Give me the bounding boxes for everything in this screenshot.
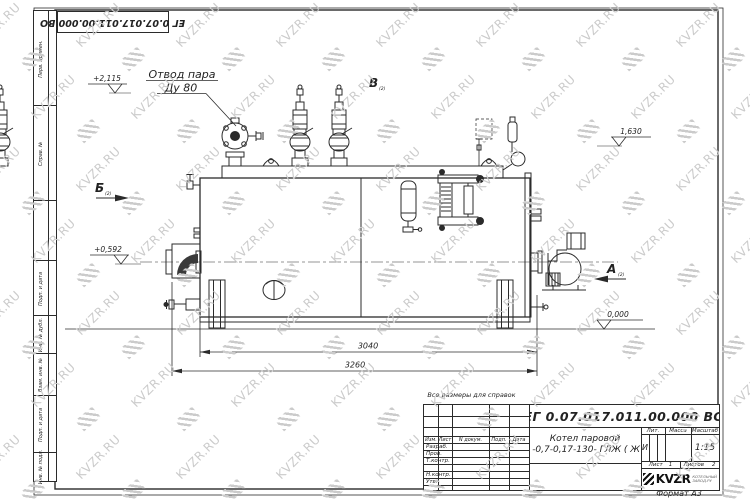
front-fittings [164, 175, 201, 311]
margin-box-divider [48, 453, 49, 481]
sheets-total-label: Листов [683, 462, 704, 468]
company-logo: KVZR КОТЕЛЬНЫЙ ЗАВОД.РУ [643, 470, 717, 488]
product-name-line2: Е -0,7-0,17-130- ГЛЖ ( Ж ) [529, 445, 641, 456]
drawing-sheet: 3040 3260 +2,115 1,630 +0,592 0,000 Б (2… [0, 0, 750, 500]
margin-label: Перв. примен. [38, 40, 44, 78]
steam-outlet-label-1: Отвод пара [148, 68, 215, 81]
elevation-zero-label: 0,000 [607, 310, 629, 319]
elevation-marks [88, 84, 651, 329]
view-a-label: А [606, 262, 616, 276]
view-b-label: Б [95, 181, 104, 195]
view-v-label: В [369, 76, 378, 90]
dim-outer-label: 3260 [345, 361, 365, 370]
kvzr-logo-sub2: ЗАВОД.РУ [692, 479, 717, 484]
reference-note: Все размеры для справок [424, 391, 519, 399]
margin-label: Подп. и дата [38, 271, 44, 305]
col-podp: Подп. [489, 436, 509, 443]
margin-box-divider [48, 316, 49, 354]
sheets-total-number: 2 [712, 462, 716, 468]
boiler-shell [200, 166, 531, 322]
lifting-lugs [263, 159, 497, 166]
margin-box-divider [48, 201, 49, 261]
row-tkontr: Т.контр. [424, 457, 454, 464]
dim-inner-label: 3040 [358, 342, 378, 351]
sheet-number: 1 [669, 462, 673, 468]
margin-box-divider [48, 106, 49, 201]
elevation-right-label: 1,630 [620, 127, 642, 136]
margin-box-sprav: Справ. № [33, 105, 57, 202]
manhole [263, 281, 285, 300]
col-izm: Изм. [424, 436, 438, 443]
col-data: Дата [509, 436, 529, 443]
scale-value: 1:15 [691, 434, 719, 461]
margin-box-divider [48, 261, 49, 316]
condensate-vessel [401, 181, 422, 232]
top-stamp-box: ЕГ 0.07.017.011.00.000 ВО [57, 11, 169, 33]
margin-box-divider [48, 396, 49, 453]
margin-label: Инв. № дубл. [38, 318, 44, 352]
header-massa: Масса [665, 427, 691, 434]
steam-outlet-valve [222, 118, 263, 166]
margin-label: Справ. № [38, 141, 44, 165]
sensor-capsule [508, 122, 517, 142]
safety-valve [0, 85, 13, 166]
row-prov: Пров. [424, 450, 454, 457]
steam-outlet-label-2: Ду 80 [164, 82, 198, 95]
elevation-top-label: +2,115 [93, 74, 121, 83]
header-masshtab: Масштаб [691, 427, 719, 434]
top-stamp-number: ЕГ 0.07.017.011.00.000 ВО [40, 17, 185, 28]
lit-value: И [641, 434, 649, 461]
elevation-left-label: +0,592 [94, 245, 122, 254]
margin-box-inv-dubl: Инв. № дубл. [33, 315, 57, 355]
col-n-dokum: N докум. [452, 436, 489, 443]
row-nkontr: Н.контр. [424, 471, 454, 478]
steam-outlet-callout: Отвод пара Ду 80 [146, 68, 236, 126]
header-lit: Лит. [641, 427, 665, 434]
margin-box-vzam-inv: Взам. инв. № [33, 353, 57, 397]
margin-box-podp-data-1: Подп. и дата [33, 260, 57, 317]
kvzr-logo-icon [643, 473, 654, 485]
title-block: ЕГ 0.07.017.011.00.000 ВО Котел паровой … [423, 404, 720, 491]
margin-box-empty [33, 200, 57, 262]
margin-box-divider [48, 354, 49, 396]
feed-pump [531, 233, 586, 290]
margin-label: Инв. № подл. [38, 450, 44, 485]
rear-stubs [531, 209, 548, 311]
view-v-ref: (2) [379, 86, 386, 92]
view-b-ref: (2) [105, 191, 112, 197]
margin-box-podp-data-2: Подп. и дата [33, 395, 57, 454]
row-utv: Утв. [424, 478, 454, 485]
kvzr-logo-text: KVZR [656, 472, 691, 486]
col-list: Лист [438, 436, 452, 443]
product-name-line1: Котел паровой [550, 434, 621, 445]
view-a-ref: (2) [618, 272, 625, 278]
margin-box-inv-podl: Инв. № подл. [33, 452, 57, 482]
margin-label: Подп. и дата [38, 407, 44, 441]
margin-label: Взам. инв. № [38, 358, 44, 392]
doc-number: ЕГ 0.07.017.011.00.000 ВО [529, 405, 719, 427]
format-label: Формат А3 [640, 489, 718, 498]
sheet-label: Лист [649, 462, 663, 468]
row-razrab: Разраб. [424, 443, 454, 450]
